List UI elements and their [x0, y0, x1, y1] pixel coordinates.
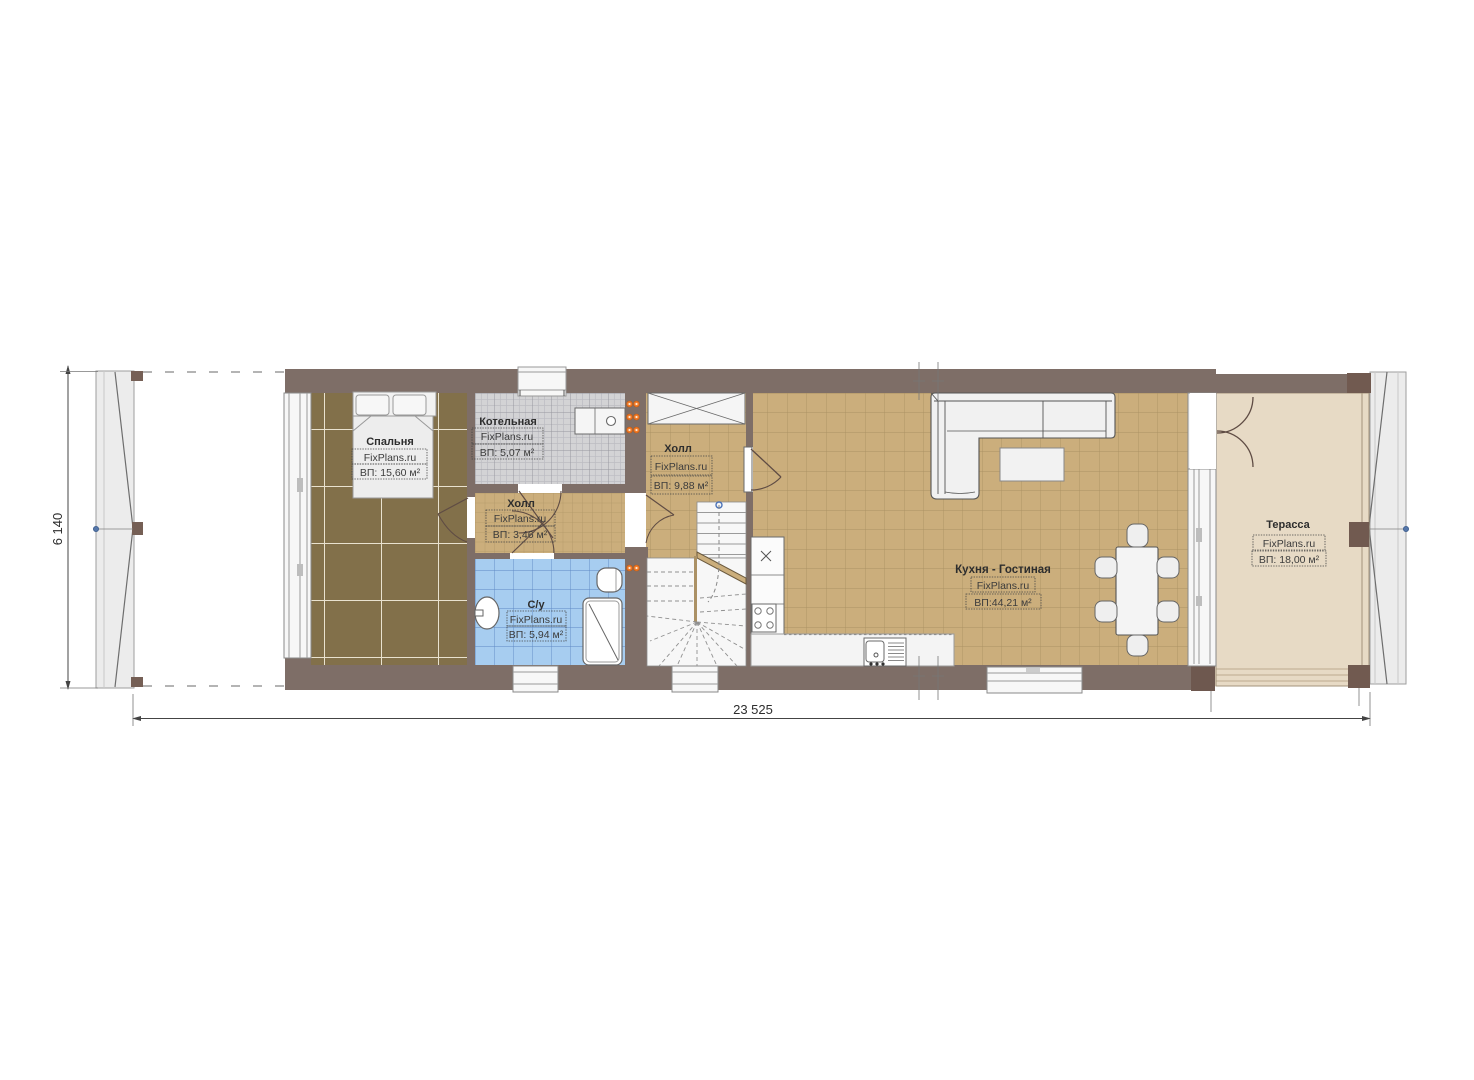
- svg-text:FixPlans.ru: FixPlans.ru: [977, 580, 1030, 592]
- svg-text:FixPlans.ru: FixPlans.ru: [1263, 538, 1316, 550]
- svg-text:ВП: 5,07 м²: ВП: 5,07 м²: [480, 447, 535, 459]
- svg-text:FixPlans.ru: FixPlans.ru: [510, 614, 563, 626]
- svg-text:23 525: 23 525: [733, 702, 773, 717]
- svg-text:Холл: Холл: [664, 443, 692, 455]
- svg-text:С/у: С/у: [527, 599, 545, 611]
- svg-text:FixPlans.ru: FixPlans.ru: [494, 513, 547, 525]
- svg-text:Кухня - Гостиная: Кухня - Гостиная: [955, 564, 1051, 576]
- svg-text:ВП: 3,46 м²: ВП: 3,46 м²: [493, 529, 548, 541]
- svg-text:FixPlans.ru: FixPlans.ru: [655, 461, 708, 473]
- svg-text:ВП: 15,60 м²: ВП: 15,60 м²: [360, 467, 421, 479]
- svg-text:FixPlans.ru: FixPlans.ru: [364, 452, 417, 464]
- svg-text:Холл: Холл: [507, 498, 535, 510]
- svg-text:ВП: 18,00 м²: ВП: 18,00 м²: [1259, 554, 1320, 566]
- svg-text:6 140: 6 140: [50, 513, 65, 546]
- svg-text:FixPlans.ru: FixPlans.ru: [481, 431, 534, 443]
- svg-text:Терасса: Терасса: [1266, 519, 1310, 531]
- svg-text:ВП: 9,88 м²: ВП: 9,88 м²: [654, 480, 709, 492]
- svg-text:ВП:44,21 м²: ВП:44,21 м²: [974, 597, 1032, 609]
- svg-text:ВП: 5,94 м²: ВП: 5,94 м²: [509, 629, 564, 641]
- svg-text:Спальня: Спальня: [366, 436, 414, 448]
- svg-text:Котельная: Котельная: [479, 416, 537, 428]
